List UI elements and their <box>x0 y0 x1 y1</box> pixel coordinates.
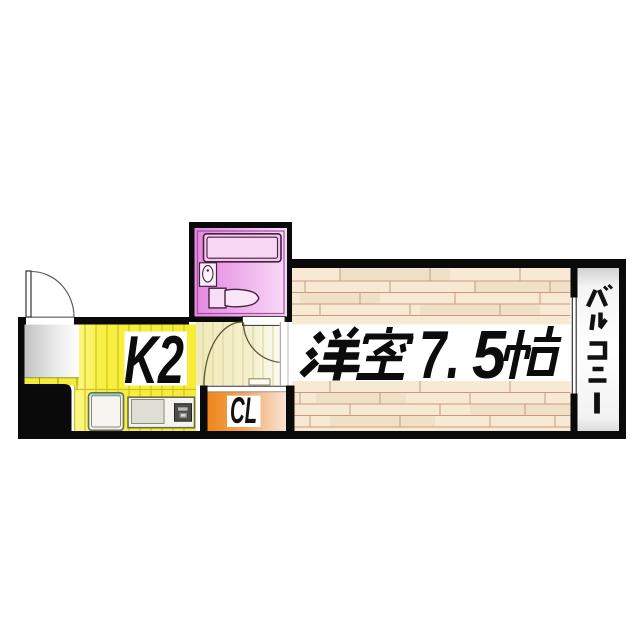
svg-text:K2: K2 <box>124 322 184 398</box>
svg-text:7.: 7. <box>419 317 460 393</box>
svg-text:CL: CL <box>230 390 257 431</box>
svg-text:5: 5 <box>472 317 507 393</box>
